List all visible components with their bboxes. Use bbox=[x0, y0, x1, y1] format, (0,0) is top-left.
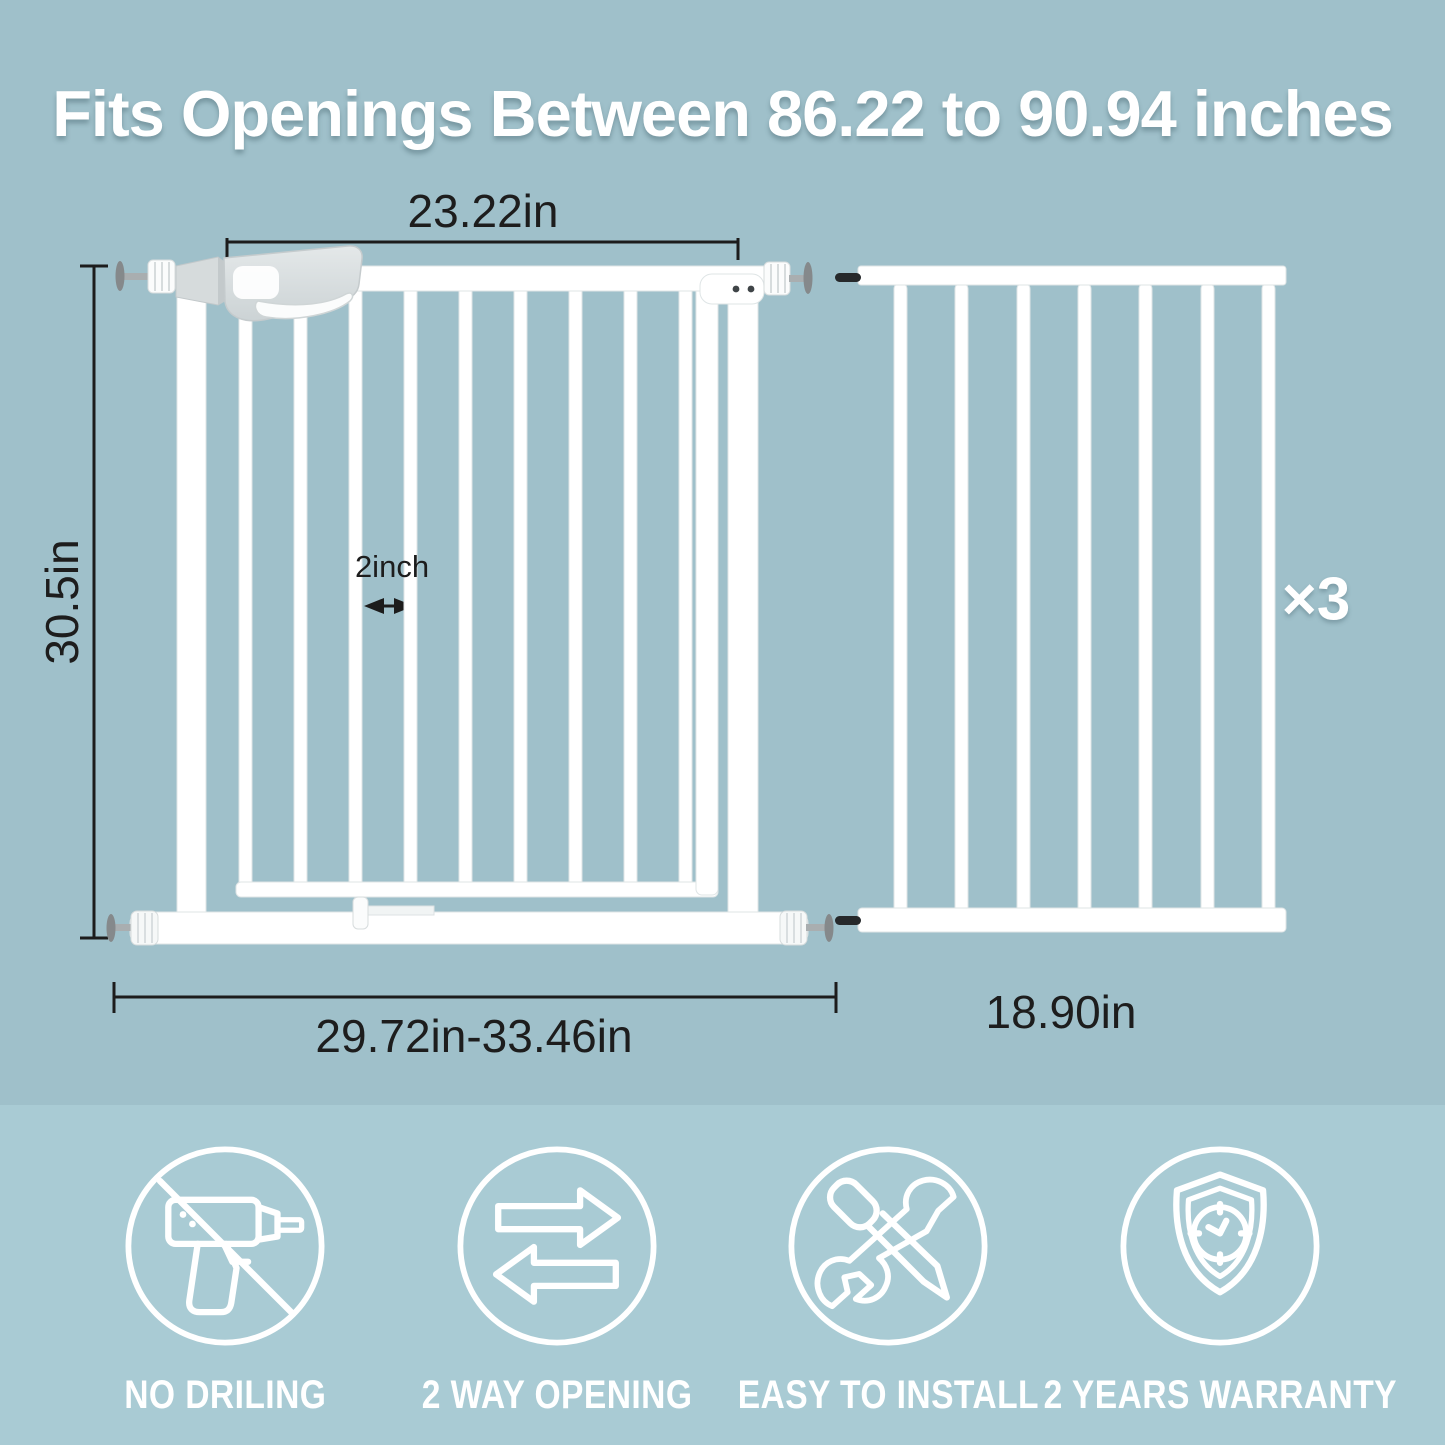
diagram-section: Fits Openings Between 86.22 to 90.94 inc… bbox=[0, 0, 1445, 1105]
extension-bars bbox=[894, 283, 1275, 915]
warranty-icon bbox=[1115, 1141, 1325, 1351]
feature-no-drilling: NO DRILING bbox=[60, 1141, 390, 1418]
product-infographic: Fits Openings Between 86.22 to 90.94 inc… bbox=[0, 0, 1445, 1445]
gate-bars bbox=[239, 286, 692, 892]
feature-two-way-opening: 2 WAY OPENING bbox=[392, 1141, 722, 1418]
hinge-bracket bbox=[700, 274, 764, 304]
extension-quantity-label: ×3 bbox=[1282, 565, 1350, 634]
width-range-label: 29.72in-33.46in bbox=[315, 1009, 632, 1063]
feature-band: NO DRILING 2 WAY OPENING bbox=[0, 1105, 1445, 1445]
extension-panel bbox=[858, 266, 1286, 932]
feature-label: 2 WAY OPENING bbox=[421, 1373, 692, 1418]
no-drilling-icon bbox=[120, 1141, 330, 1351]
main-gate bbox=[130, 266, 808, 944]
gate-height-label: 30.5in bbox=[35, 539, 89, 664]
extension-width-label: 18.90in bbox=[986, 985, 1137, 1039]
bar-gap-label: 2inch bbox=[355, 549, 429, 585]
feature-warranty: 2 YEARS WARRANTY bbox=[1055, 1141, 1385, 1418]
feature-label: NO DRILING bbox=[124, 1373, 326, 1418]
right-frame-post bbox=[728, 270, 758, 930]
feature-label: EASY TO INSTALL bbox=[738, 1373, 1039, 1418]
door-bottom-rail bbox=[236, 882, 718, 897]
feature-label: 2 YEARS WARRANTY bbox=[1043, 1373, 1396, 1418]
extension-bottom-rail bbox=[858, 908, 1286, 932]
latch-housing bbox=[224, 246, 362, 321]
door-width-label: 23.22in bbox=[408, 184, 559, 238]
two-way-opening-icon bbox=[452, 1141, 662, 1351]
door-right-stile bbox=[696, 270, 718, 895]
extension-pins bbox=[835, 273, 861, 925]
feature-easy-install: EASY TO INSTALL bbox=[723, 1141, 1053, 1418]
left-frame-post bbox=[177, 268, 206, 930]
extension-top-rail bbox=[858, 266, 1286, 285]
bottom-crossbar bbox=[130, 912, 808, 944]
easy-install-icon bbox=[783, 1141, 993, 1351]
